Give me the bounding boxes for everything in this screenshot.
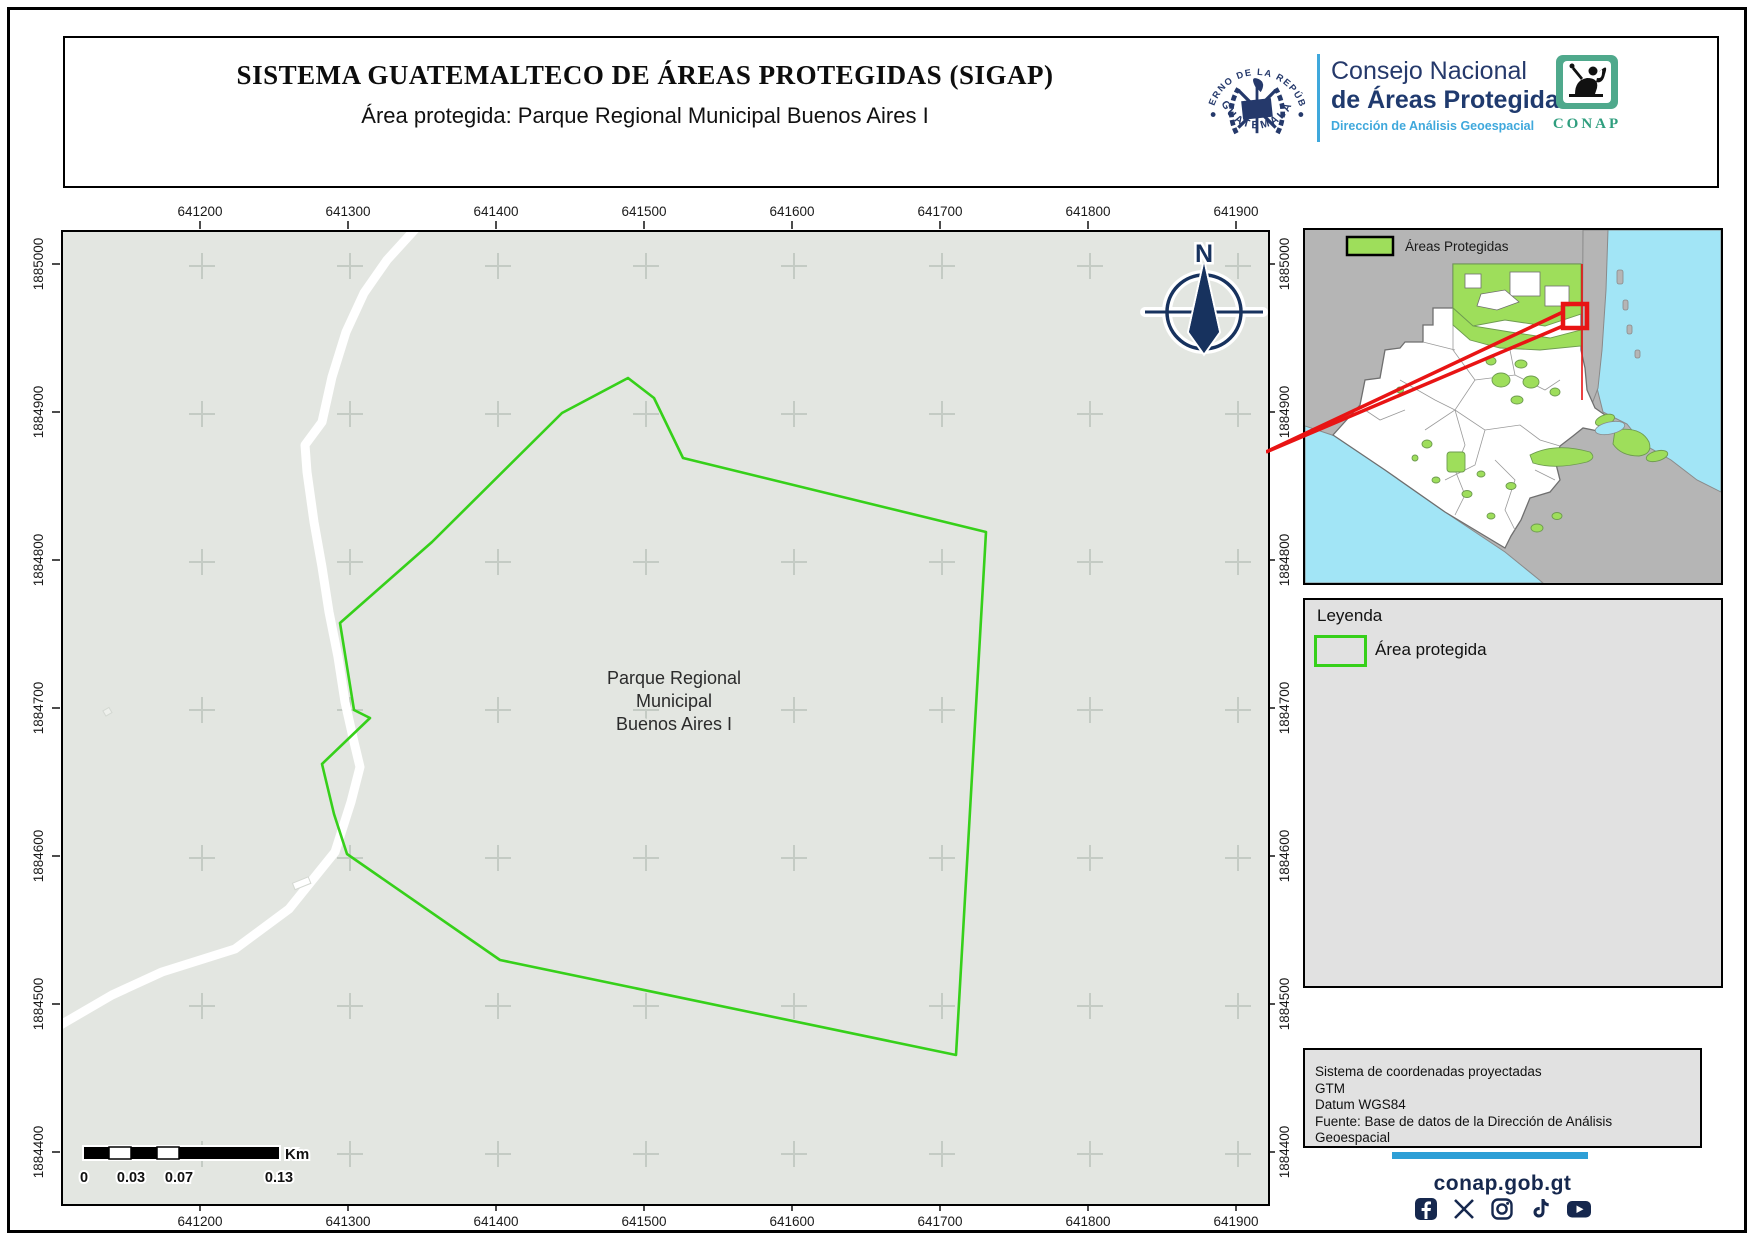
- page-title: SISTEMA GUATEMALTECO DE ÁREAS PROTEGIDAS…: [145, 60, 1145, 91]
- svg-text:Municipal: Municipal: [636, 691, 712, 711]
- page-subtitle: Área protegida: Parque Regional Municipa…: [145, 103, 1145, 129]
- info-line-datum: Datum WGS84: [1315, 1097, 1690, 1114]
- legend-area-label: Área protegida: [1375, 640, 1487, 660]
- facebook-icon[interactable]: [1414, 1197, 1438, 1221]
- inset-legend-label: Áreas Protegidas: [1405, 239, 1509, 254]
- scale-bar-unit: Km: [285, 1146, 309, 1163]
- social-icons-row: [1303, 1197, 1702, 1221]
- main-map: Parque Regional Municipal Buenos Aires I…: [61, 230, 1270, 1206]
- government-seal-logo: GOBIERNO DE LA REPÚBLICA GUATEMALA: [1201, 44, 1313, 172]
- main-map-canvas: Parque Regional Municipal Buenos Aires I…: [63, 232, 1268, 1204]
- info-line-projection: GTM: [1315, 1081, 1690, 1098]
- legend-area-swatch: [1314, 635, 1367, 667]
- website-link[interactable]: conap.gob.gt: [1303, 1172, 1702, 1196]
- legend-title: Leyenda: [1317, 606, 1382, 626]
- scale-bar-tick-label: 0.07: [165, 1170, 193, 1186]
- inset-map-canvas: Áreas Protegidas: [1305, 230, 1721, 583]
- conap-logo-icon: [1555, 54, 1619, 110]
- inset-map-box: Áreas Protegidas: [1303, 228, 1723, 585]
- footer-blue-bar: [1392, 1152, 1588, 1159]
- conap-wordmark: CONAP: [1549, 116, 1625, 133]
- scale-bar-tick-label: 0.13: [265, 1170, 293, 1186]
- title-block: SISTEMA GUATEMALTECO DE ÁREAS PROTEGIDAS…: [145, 60, 1145, 129]
- svg-text:Buenos Aires I: Buenos Aires I: [616, 714, 732, 734]
- north-label: N: [1195, 240, 1213, 268]
- inset-legend-swatch: [1347, 237, 1393, 255]
- info-line-source: Fuente: Base de datos de la Dirección de…: [1315, 1114, 1690, 1147]
- map-document-page: SISTEMA GUATEMALTECO DE ÁREAS PROTEGIDAS…: [0, 0, 1754, 1240]
- legend-box: Leyenda Área protegida: [1303, 598, 1723, 988]
- youtube-icon[interactable]: [1566, 1197, 1592, 1221]
- seal-emblem: [1231, 78, 1282, 133]
- tiktok-icon[interactable]: [1528, 1197, 1552, 1221]
- x-twitter-icon[interactable]: [1452, 1197, 1476, 1221]
- scale-bar-tick-label: 0: [80, 1170, 88, 1186]
- seal-top-text: GOBIERNO DE LA REPÚBLICA: [1201, 44, 1308, 109]
- seal-left-dot: [1211, 112, 1216, 117]
- header: SISTEMA GUATEMALTECO DE ÁREAS PROTEGIDAS…: [63, 36, 1719, 188]
- svg-text:Parque Regional: Parque Regional: [607, 668, 741, 688]
- header-divider: [1317, 54, 1320, 142]
- seal-right-dot: [1298, 112, 1303, 117]
- instagram-icon[interactable]: [1490, 1197, 1514, 1221]
- coordinate-info-box: Sistema de coordenadas proyectadas GTM D…: [1303, 1048, 1702, 1148]
- conap-logo: CONAP: [1549, 54, 1625, 133]
- info-line-coordinate-system: Sistema de coordenadas proyectadas: [1315, 1064, 1690, 1081]
- scale-bar-tick-label: 0.03: [117, 1170, 145, 1186]
